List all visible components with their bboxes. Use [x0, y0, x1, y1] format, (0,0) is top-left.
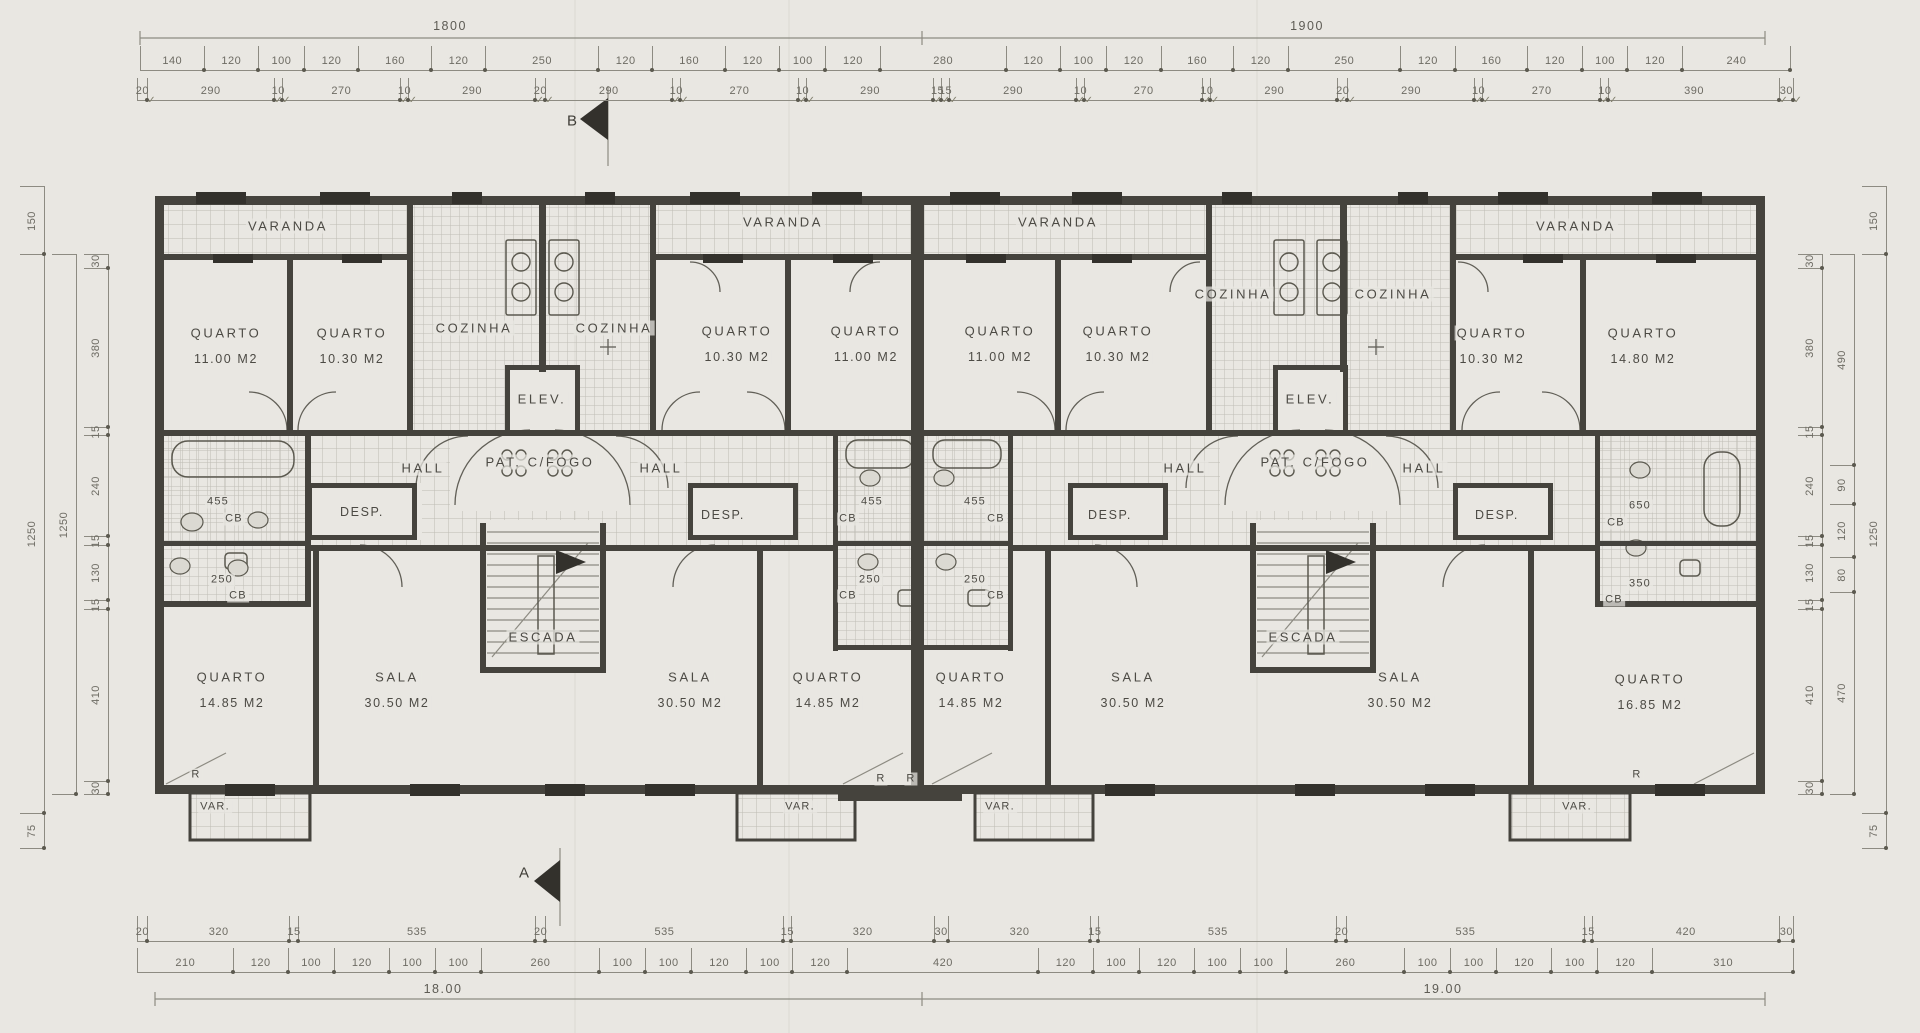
dim-value: 120	[1124, 55, 1144, 67]
dim-value: 100	[1207, 957, 1227, 969]
dim-value: 290	[1003, 85, 1023, 97]
dim-segment: 420	[1593, 916, 1780, 941]
dim-segment: 10	[1203, 78, 1211, 100]
dim-value: 260	[1336, 957, 1356, 969]
dim-segment: 20	[536, 916, 546, 941]
dim-value: 120	[1418, 55, 1438, 67]
dim-segment: 100	[600, 948, 646, 972]
dim-segment: 130	[1798, 546, 1822, 601]
dim-segment: 15	[1585, 916, 1593, 941]
dim-segment: 250	[1289, 46, 1402, 70]
dim-segment: 120	[793, 948, 848, 972]
dim-value: 160	[679, 55, 699, 67]
dim-segment: 100	[1552, 948, 1598, 972]
dim-chain-right_inner: 3038015240151301541030	[1798, 254, 1823, 795]
dim-segment: 120	[1107, 46, 1162, 70]
dim-value: 120	[1024, 55, 1044, 67]
dim-chain-left_outer: 150125075	[20, 186, 45, 849]
dim-segment: 410	[84, 610, 108, 782]
dim-segment: 120	[234, 948, 289, 972]
dim-value: 290	[860, 85, 880, 97]
dim-segment: 320	[148, 916, 291, 941]
dim-chain-right_outer: 150125075	[1862, 186, 1887, 849]
dim-value: 100	[402, 957, 422, 969]
dim-value: 1250	[58, 511, 70, 537]
dim-value: 270	[729, 85, 749, 97]
dim-value: 100	[1253, 957, 1273, 969]
dim-segment: 100	[747, 948, 793, 972]
dim-segment: 90	[1830, 466, 1854, 506]
dim-value: 490	[1836, 350, 1848, 370]
dim-segment: 10	[799, 78, 807, 100]
dim-value: 420	[1676, 926, 1696, 938]
dim-segment: 30	[1798, 782, 1822, 796]
dim-segment: 290	[807, 78, 934, 100]
dim-value: 535	[1208, 926, 1228, 938]
dim-value: 30	[90, 781, 102, 794]
dim-segment: 10	[1475, 78, 1483, 100]
dim-segment: 10	[1601, 78, 1609, 100]
dim-segment: 120	[692, 948, 747, 972]
dim-segment: 15	[1091, 916, 1099, 941]
dim-segment: 120	[432, 46, 487, 70]
dim-segment: 270	[1483, 78, 1601, 100]
dim-segment: 15	[84, 601, 108, 610]
dim-value: 120	[449, 55, 469, 67]
dim-segment: 15	[84, 428, 108, 437]
dim-chain-bottom_upper: 2032015535205351532030320155352053515420…	[137, 916, 1794, 942]
dim-segment: 150	[20, 187, 44, 255]
dim-value: 120	[743, 55, 763, 67]
dim-value: 75	[1868, 825, 1880, 838]
dim-value: 260	[531, 957, 551, 969]
dim-segment: 140	[141, 46, 205, 70]
dim-value: 210	[175, 957, 195, 969]
dim-value: 380	[1804, 338, 1816, 358]
dim-chain-left_inner: 3038015240151301541030	[84, 254, 109, 795]
dim-segment: 30	[1780, 916, 1794, 941]
dim-segment: 100	[1061, 46, 1107, 70]
dim-segment: 320	[792, 916, 935, 941]
dim-segment: 210	[138, 948, 234, 972]
dim-segment: 10	[673, 78, 681, 100]
dim-value: 280	[933, 55, 953, 67]
dim-value: 100	[301, 957, 321, 969]
dim-value: 120	[352, 957, 372, 969]
dim-segment: 100	[1451, 948, 1497, 972]
dim-value: 120	[810, 957, 830, 969]
dim-value: 30	[1804, 255, 1816, 268]
dim-value: 250	[1334, 55, 1354, 67]
dim-segment: 75	[20, 814, 44, 849]
dim-value: 290	[599, 85, 619, 97]
dim-segment: 100	[289, 948, 335, 972]
dim-segment: 150	[1862, 187, 1886, 255]
dim-segment: 10	[275, 78, 283, 100]
dim-value: 100	[1418, 957, 1438, 969]
dim-segment: 380	[84, 269, 108, 428]
dim-value: 100	[760, 957, 780, 969]
dim-segment: 120	[205, 46, 260, 70]
dim-value: 130	[1804, 563, 1816, 583]
dim-segment: 120	[1598, 948, 1653, 972]
dim-chain-bottom_detail: 2101201001201001002601001001201001204201…	[137, 948, 1794, 973]
dim-segment: 290	[409, 78, 536, 100]
dim-value: 120	[1615, 957, 1635, 969]
dim-value: 270	[331, 85, 351, 97]
dim-segment: 120	[1039, 948, 1094, 972]
dim-segment: 100	[1195, 948, 1241, 972]
dim-value: 320	[1010, 926, 1030, 938]
dim-segment: 120	[726, 46, 781, 70]
dim-segment: 15	[784, 916, 792, 941]
dim-segment: 120	[335, 948, 390, 972]
dim-value: 390	[1684, 85, 1704, 97]
dim-value: 120	[1251, 55, 1271, 67]
dim-segment: 30	[84, 782, 108, 796]
dim-segment: 100	[1405, 948, 1451, 972]
dim-value: 140	[162, 55, 182, 67]
dim-segment: 30	[1798, 255, 1822, 269]
dim-value: 160	[1187, 55, 1207, 67]
dim-value: 420	[933, 957, 953, 969]
dim-segment: 280	[881, 46, 1007, 70]
dim-segment: 535	[546, 916, 784, 941]
dim-value: 90	[1836, 478, 1848, 491]
dim-segment: 100	[259, 46, 305, 70]
dim-value: 150	[26, 211, 38, 231]
dim-segment: 120	[305, 46, 360, 70]
dim-segment: 30	[935, 916, 949, 941]
dim-segment: 290	[950, 78, 1077, 100]
dim-value: 100	[1106, 957, 1126, 969]
dim-segment: 15	[290, 916, 298, 941]
dim-segment: 120	[1628, 46, 1683, 70]
dim-chain-top_segments: 1401201001201601202501201601201001202801…	[140, 46, 1791, 71]
dim-value: 270	[1532, 85, 1552, 97]
dim-segment: 290	[1211, 78, 1338, 100]
dim-segment: 310	[1653, 948, 1794, 972]
dim-value: 100	[1565, 957, 1585, 969]
dim-value: 120	[1645, 55, 1665, 67]
dim-segment: 470	[1830, 593, 1854, 795]
dimension-layer: 1401201001201601202501201601201001202801…	[0, 0, 1920, 1033]
dim-value: 30	[935, 926, 948, 938]
dim-segment: 15	[1798, 601, 1822, 610]
dim-segment: 260	[1287, 948, 1405, 972]
dim-segment: 250	[486, 46, 599, 70]
dim-segment: 260	[482, 948, 600, 972]
dim-value: 100	[793, 55, 813, 67]
dim-segment: 130	[84, 546, 108, 601]
dim-chain-left_mid: 1250	[52, 254, 77, 795]
dim-value: 120	[221, 55, 241, 67]
dim-value: 100	[448, 957, 468, 969]
dim-segment: 100	[646, 948, 692, 972]
dim-segment: 30	[84, 255, 108, 269]
dim-segment: 535	[1099, 916, 1337, 941]
dim-segment: 120	[1007, 46, 1062, 70]
dim-segment: 100	[780, 46, 826, 70]
dim-segment: 15	[1798, 428, 1822, 437]
dim-value: 160	[1481, 55, 1501, 67]
dim-segment: 15	[1798, 537, 1822, 546]
dim-segment: 120	[826, 46, 881, 70]
dim-segment: 390	[1609, 78, 1780, 100]
dim-segment: 120	[599, 46, 654, 70]
dim-value: 240	[1804, 476, 1816, 496]
dim-value: 120	[616, 55, 636, 67]
dim-value: 250	[532, 55, 552, 67]
dim-segment: 100	[1094, 948, 1140, 972]
dim-segment: 10	[1077, 78, 1085, 100]
dim-segment: 290	[546, 78, 673, 100]
dim-segment: 100	[436, 948, 482, 972]
dim-value: 290	[201, 85, 221, 97]
dim-value: 120	[251, 957, 271, 969]
dim-value: 100	[613, 957, 633, 969]
dim-value: 290	[1264, 85, 1284, 97]
dim-value: 320	[209, 926, 229, 938]
dim-segment: 30	[1780, 78, 1794, 100]
dim-value: 100	[1595, 55, 1615, 67]
dim-value: 290	[462, 85, 482, 97]
dim-segment: 120	[1497, 948, 1552, 972]
dim-chain-right_mid: 4909012080470	[1830, 254, 1855, 795]
dim-segment: 270	[283, 78, 401, 100]
dim-segment: 20	[536, 78, 546, 100]
dim-value: 120	[1056, 957, 1076, 969]
dim-value: 120	[1836, 521, 1848, 541]
dim-segment: 420	[848, 948, 1038, 972]
dim-segment: 490	[1830, 255, 1854, 466]
dim-segment: 380	[1798, 269, 1822, 428]
dim-segment: 240	[1683, 46, 1791, 70]
dim-segment: 75	[1862, 814, 1886, 849]
dim-value: 120	[843, 55, 863, 67]
dim-value: 100	[659, 957, 679, 969]
dim-value: 535	[1455, 926, 1475, 938]
dim-value: 310	[1713, 957, 1733, 969]
dim-segment: 20	[138, 78, 148, 100]
dim-segment: 160	[653, 46, 725, 70]
dim-segment: 160	[1456, 46, 1528, 70]
dim-segment: 120	[1830, 505, 1854, 557]
dim-value: 320	[853, 926, 873, 938]
dim-segment: 20	[1338, 78, 1348, 100]
dim-value: 30	[1780, 926, 1793, 938]
dim-segment: 100	[1583, 46, 1629, 70]
dim-segment: 1250	[52, 255, 76, 795]
dim-segment: 120	[1234, 46, 1289, 70]
dim-segment: 100	[1241, 948, 1287, 972]
dim-segment: 160	[359, 46, 431, 70]
dim-value: 380	[90, 338, 102, 358]
dim-value: 120	[322, 55, 342, 67]
dim-value: 100	[271, 55, 291, 67]
dim-value: 30	[1780, 85, 1793, 97]
dim-segment: 1250	[1862, 255, 1886, 814]
dim-value: 120	[709, 957, 729, 969]
dim-segment: 240	[1798, 436, 1822, 537]
dim-segment: 10	[401, 78, 409, 100]
dim-segment: 535	[1347, 916, 1585, 941]
dim-segment: 20	[138, 916, 148, 941]
dim-value: 120	[1157, 957, 1177, 969]
dim-value: 1250	[26, 521, 38, 547]
dim-value: 30	[1804, 781, 1816, 794]
dim-value: 160	[385, 55, 405, 67]
floor-plan-sheet: VARANDAVARANDAVARANDAVARANDAQUARTO11.00 …	[0, 0, 1920, 1033]
dim-chain-top_detail: 2029010270102902029010270102901515290102…	[137, 78, 1794, 101]
dim-segment: 120	[1401, 46, 1456, 70]
dim-segment: 120	[1528, 46, 1583, 70]
dim-segment: 80	[1830, 558, 1854, 593]
dim-value: 120	[1514, 957, 1534, 969]
dim-segment: 535	[299, 916, 537, 941]
dim-value: 30	[90, 255, 102, 268]
dim-segment: 270	[1085, 78, 1203, 100]
dim-value: 410	[90, 685, 102, 705]
dim-segment: 410	[1798, 610, 1822, 782]
dim-segment: 320	[949, 916, 1092, 941]
dim-value: 535	[655, 926, 675, 938]
dim-value: 1250	[1868, 521, 1880, 547]
dim-value: 410	[1804, 685, 1816, 705]
dim-value: 240	[1727, 55, 1747, 67]
dim-value: 80	[1836, 568, 1848, 581]
dim-value: 270	[1134, 85, 1154, 97]
dim-segment: 290	[148, 78, 275, 100]
dim-segment: 15	[84, 537, 108, 546]
dim-segment: 270	[681, 78, 799, 100]
dim-segment: 1250	[20, 255, 44, 814]
dim-value: 290	[1401, 85, 1421, 97]
dim-value: 75	[26, 825, 38, 838]
dim-segment: 15	[942, 78, 950, 100]
dim-segment: 160	[1162, 46, 1234, 70]
dim-segment: 290	[1348, 78, 1475, 100]
dim-value: 150	[1868, 211, 1880, 231]
dim-segment: 240	[84, 436, 108, 537]
dim-value: 130	[90, 563, 102, 583]
dim-value: 240	[90, 476, 102, 496]
dim-value: 100	[1464, 957, 1484, 969]
dim-segment: 20	[1337, 916, 1347, 941]
dim-value: 120	[1545, 55, 1565, 67]
dim-value: 535	[407, 926, 427, 938]
dim-value: 100	[1074, 55, 1094, 67]
dim-segment: 100	[390, 948, 436, 972]
dim-segment: 120	[1140, 948, 1195, 972]
dim-value: 470	[1836, 683, 1848, 703]
